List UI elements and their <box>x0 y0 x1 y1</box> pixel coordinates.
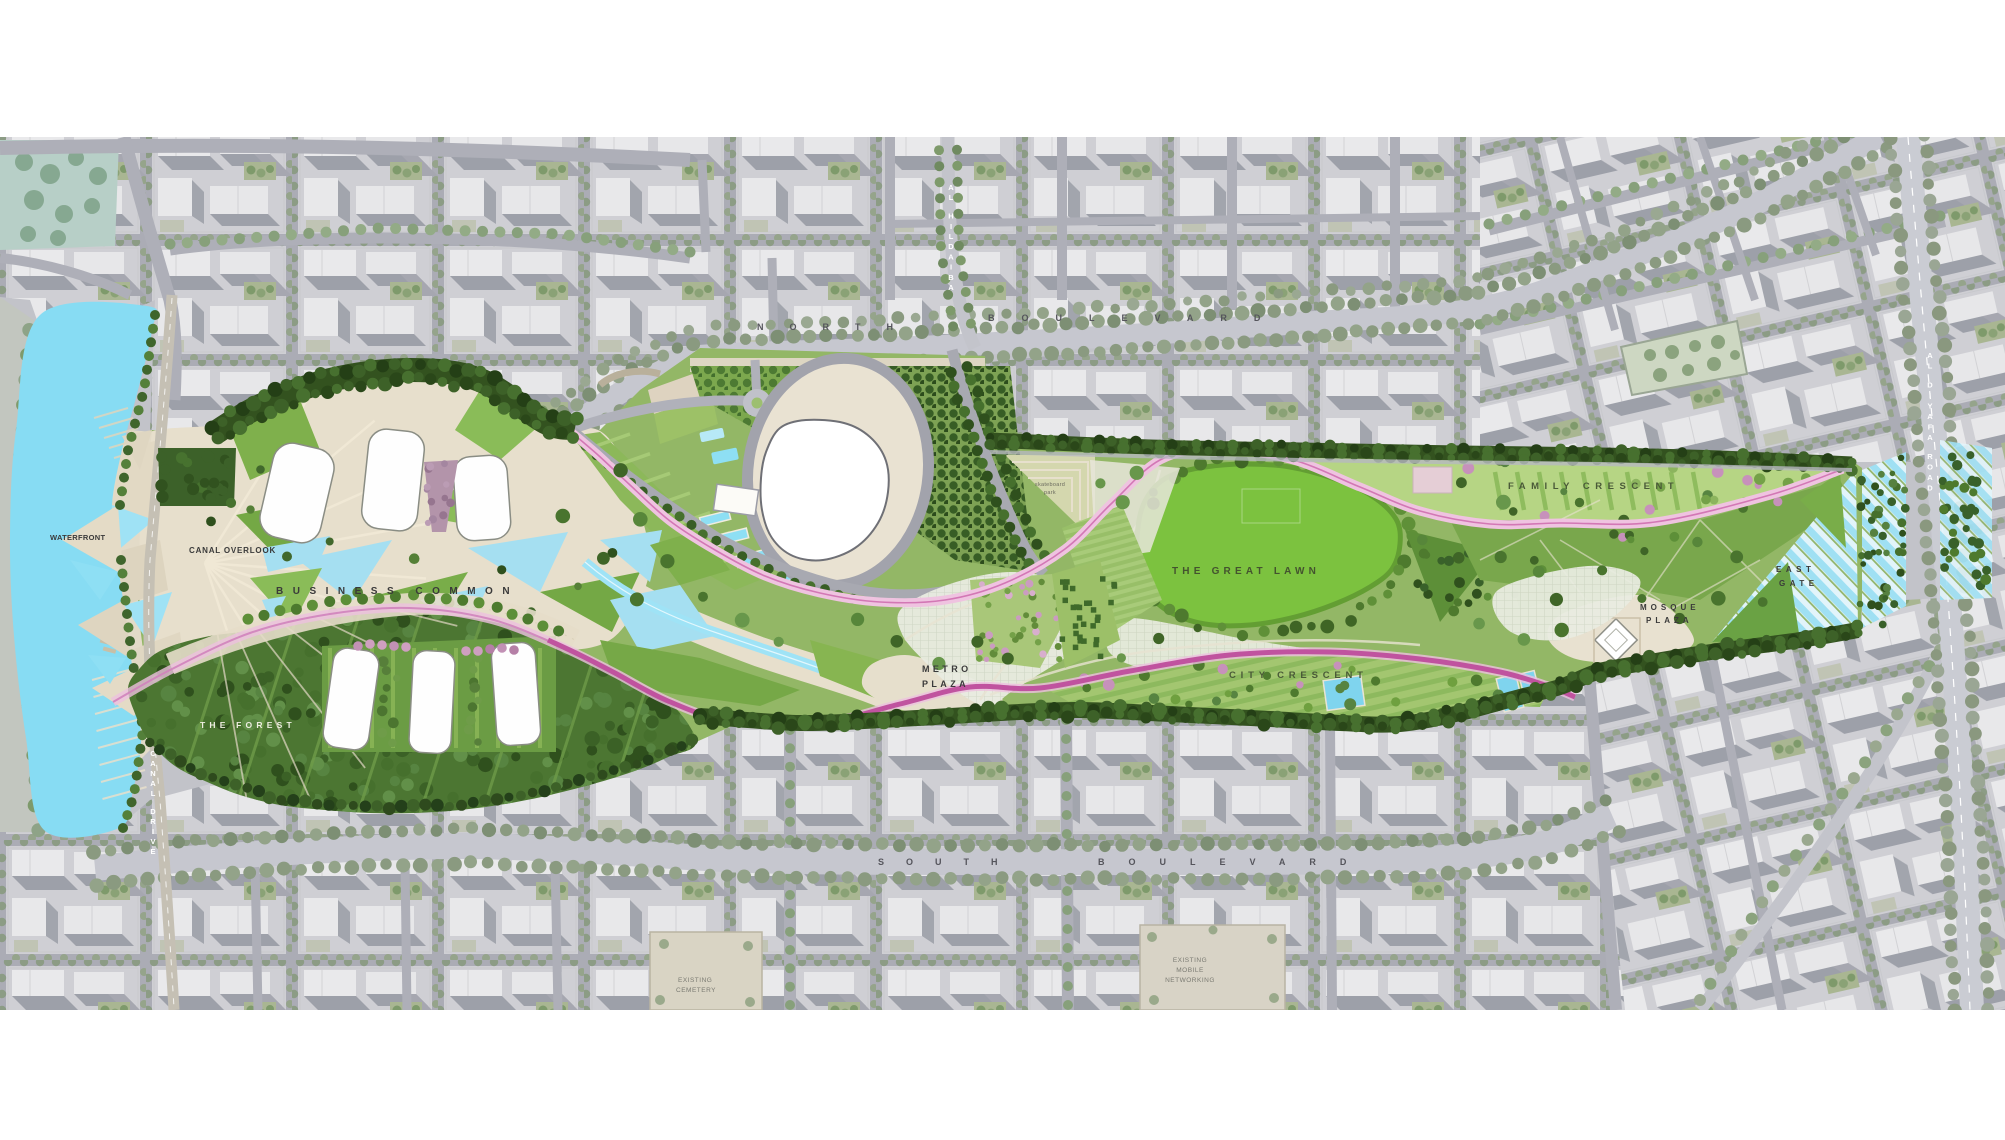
svg-text:BUSINESS COMMON: BUSINESS COMMON <box>276 586 519 597</box>
svg-text:CEMETERY: CEMETERY <box>676 987 716 994</box>
svg-text:CITY CRESCENT: CITY CRESCENT <box>1229 670 1368 681</box>
svg-text:PLAZA: PLAZA <box>922 679 969 689</box>
svg-text:WATERFRONT: WATERFRONT <box>50 533 105 542</box>
svg-text:park: park <box>1044 490 1056 496</box>
svg-text:EAST: EAST <box>1776 565 1815 574</box>
svg-text:METRO: METRO <box>922 664 972 674</box>
svg-text:MOBILE: MOBILE <box>1176 967 1204 974</box>
svg-text:GATE: GATE <box>1779 579 1819 588</box>
svg-text:MOSQUE: MOSQUE <box>1640 603 1700 612</box>
svg-text:THE GREAT LAWN: THE GREAT LAWN <box>1172 566 1320 577</box>
svg-text:NETWORKING: NETWORKING <box>1165 977 1215 984</box>
svg-text:EXISTING: EXISTING <box>678 977 712 984</box>
svg-text:NORTH: NORTH <box>757 322 919 332</box>
svg-text:SOUTH: SOUTH <box>878 857 1020 867</box>
svg-text:FAMILY CRESCENT: FAMILY CRESCENT <box>1508 481 1679 492</box>
svg-text:skateboard: skateboard <box>1035 482 1065 488</box>
svg-text:THE FOREST: THE FOREST <box>200 720 296 730</box>
svg-text:BOULEVARD: BOULEVARD <box>988 313 1287 323</box>
svg-text:CANAL OVERLOOK: CANAL OVERLOOK <box>189 546 276 555</box>
svg-text:PLAZA: PLAZA <box>1646 616 1693 625</box>
svg-text:BOULEVARD: BOULEVARD <box>1098 857 1370 867</box>
svg-text:EXISTING: EXISTING <box>1173 957 1207 964</box>
